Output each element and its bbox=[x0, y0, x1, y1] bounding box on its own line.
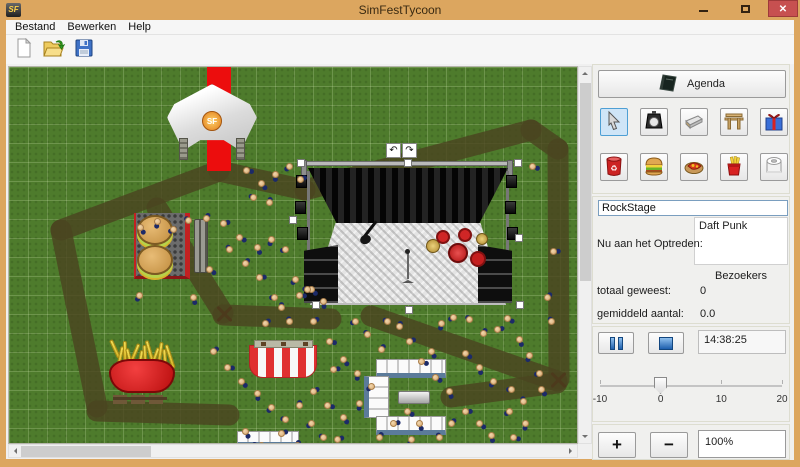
new-file-icon bbox=[14, 38, 34, 61]
visitor-head bbox=[185, 217, 192, 224]
visitor bbox=[254, 390, 262, 398]
visitor bbox=[476, 420, 484, 428]
tool-button-burger[interactable] bbox=[640, 153, 668, 181]
cursor-icon bbox=[603, 110, 625, 135]
visitor-head bbox=[480, 330, 487, 337]
visitor-head bbox=[418, 358, 425, 365]
stop-button[interactable] bbox=[648, 332, 684, 354]
visitor bbox=[320, 298, 328, 306]
visitor-head bbox=[428, 348, 435, 355]
open-folder-icon bbox=[43, 38, 65, 61]
tool-button-mattress[interactable] bbox=[680, 108, 708, 136]
rig-bar bbox=[307, 171, 310, 259]
title-bar: SF SimFestTycoon bbox=[0, 0, 800, 20]
visitor-head bbox=[220, 220, 227, 227]
visitor-head bbox=[326, 338, 333, 345]
visitor-head bbox=[268, 404, 275, 411]
visitor-head bbox=[494, 326, 501, 333]
visitor-head bbox=[466, 316, 473, 323]
visitor-head bbox=[376, 434, 383, 441]
visitor-head bbox=[548, 318, 555, 325]
visitor-head bbox=[286, 318, 293, 325]
visitor bbox=[268, 404, 276, 412]
selection-handle[interactable] bbox=[404, 159, 412, 167]
burger-icon bbox=[643, 155, 665, 180]
visitor bbox=[396, 323, 404, 331]
visitor-head bbox=[340, 356, 347, 363]
visitor-head bbox=[136, 292, 143, 299]
light-rig-l bbox=[294, 171, 312, 259]
window-title: SimFestTycoon bbox=[0, 0, 800, 20]
horizontal-scroll-thumb[interactable] bbox=[21, 446, 151, 457]
visitor-head bbox=[238, 378, 245, 385]
visitor-head bbox=[242, 428, 249, 435]
visitor-head bbox=[476, 420, 483, 427]
visitor bbox=[136, 292, 144, 300]
guitar-body bbox=[359, 233, 372, 245]
visitor-head bbox=[210, 348, 217, 355]
visitor bbox=[292, 276, 300, 284]
visitor bbox=[404, 408, 412, 416]
visitor-head bbox=[154, 218, 161, 225]
drum-part bbox=[448, 243, 468, 263]
tool-button-fries[interactable] bbox=[720, 153, 748, 181]
visitor-head bbox=[268, 236, 275, 243]
vertical-scroll-thumb[interactable] bbox=[580, 83, 591, 281]
close-button[interactable] bbox=[768, 0, 798, 17]
maximize-button[interactable] bbox=[734, 0, 756, 17]
guitar bbox=[358, 219, 382, 247]
visitor bbox=[320, 434, 328, 442]
drum-kit bbox=[428, 227, 490, 281]
visitor-head bbox=[432, 374, 439, 381]
total-visitors-value: 0 bbox=[700, 285, 706, 297]
visitor bbox=[258, 180, 266, 188]
menu-item-bestand[interactable]: Bestand bbox=[9, 20, 61, 35]
light-rig-r bbox=[504, 171, 522, 259]
visitor-head bbox=[550, 248, 557, 255]
visitor bbox=[268, 236, 276, 244]
visitor-head bbox=[462, 408, 469, 415]
selection-handle[interactable] bbox=[405, 306, 413, 314]
visitor bbox=[324, 402, 332, 410]
visitor bbox=[376, 434, 384, 442]
visitor bbox=[368, 383, 376, 391]
agenda-button-label: Agenda bbox=[687, 78, 725, 90]
visitor bbox=[310, 318, 318, 326]
visitor-head bbox=[190, 294, 197, 301]
visitor bbox=[526, 352, 534, 360]
save-icon bbox=[74, 38, 94, 61]
spotlight bbox=[506, 175, 517, 188]
stand-counter bbox=[254, 340, 313, 348]
visitor bbox=[238, 378, 246, 386]
visitor bbox=[450, 314, 458, 322]
visitor bbox=[226, 246, 234, 254]
visitor-head bbox=[296, 402, 303, 409]
visitor bbox=[480, 330, 488, 338]
visitor-head bbox=[286, 163, 293, 170]
visitor bbox=[242, 428, 250, 436]
visitor bbox=[297, 176, 305, 184]
stage-curtain bbox=[308, 168, 508, 226]
tent-leg bbox=[179, 138, 188, 160]
visitor-head bbox=[516, 336, 523, 343]
visitor bbox=[296, 402, 304, 410]
visitor-head bbox=[368, 383, 375, 390]
visitor-head bbox=[384, 318, 391, 325]
visitor bbox=[304, 286, 312, 294]
toilet-roll-icon bbox=[763, 155, 785, 180]
visitor bbox=[236, 234, 244, 242]
visitor-head bbox=[390, 420, 397, 427]
visitors-header: Bezoekers bbox=[694, 270, 788, 282]
visitor bbox=[476, 364, 484, 372]
visitor bbox=[278, 304, 286, 312]
visitor-head bbox=[226, 246, 233, 253]
visitor bbox=[256, 274, 264, 282]
visitor-head bbox=[408, 436, 415, 443]
visitor bbox=[406, 338, 414, 346]
visitor-head bbox=[538, 386, 545, 393]
selection-handle[interactable] bbox=[515, 234, 523, 242]
visitor bbox=[508, 386, 516, 394]
rotate-right-button[interactable]: ↷ bbox=[402, 143, 417, 158]
save-button[interactable] bbox=[71, 37, 96, 62]
vertical-scrollbar[interactable] bbox=[578, 66, 592, 444]
visitor-head bbox=[320, 434, 327, 441]
pause-icon bbox=[610, 337, 623, 350]
visitor bbox=[462, 408, 470, 416]
visitor bbox=[296, 292, 304, 300]
visitor bbox=[462, 350, 470, 358]
visitor-head bbox=[462, 350, 469, 357]
bench-h[interactable] bbox=[113, 395, 167, 404]
scroll-down-arrow-icon[interactable] bbox=[579, 430, 591, 442]
visitor bbox=[536, 370, 544, 378]
visitor bbox=[356, 400, 364, 408]
visitor-head bbox=[448, 420, 455, 427]
striped-stand[interactable] bbox=[249, 345, 317, 378]
visitor-head bbox=[510, 434, 517, 441]
visitor-head bbox=[256, 274, 263, 281]
stage-name-input[interactable] bbox=[598, 200, 788, 216]
visitor bbox=[330, 366, 338, 374]
zoom-in-button[interactable]: + bbox=[598, 432, 636, 458]
trashcan-icon: ♻ bbox=[603, 155, 625, 180]
visitor bbox=[466, 316, 474, 324]
mattress-icon bbox=[683, 110, 705, 135]
visitor bbox=[170, 226, 178, 234]
visitor bbox=[488, 432, 496, 440]
now-playing-listbox[interactable]: Daft Punk bbox=[694, 217, 788, 265]
svg-text:♻: ♻ bbox=[610, 164, 617, 173]
visitor-head bbox=[356, 400, 363, 407]
slider-tick bbox=[600, 380, 601, 384]
visitor bbox=[310, 388, 318, 396]
visitor bbox=[494, 326, 502, 334]
visitor bbox=[224, 364, 232, 372]
visitor bbox=[550, 248, 558, 256]
visitor bbox=[308, 420, 316, 428]
total-visitors-label: totaal geweest: bbox=[597, 285, 671, 297]
visitor-head bbox=[364, 331, 371, 338]
visitor-head bbox=[278, 304, 285, 311]
slider-tick-label: 0 bbox=[658, 394, 664, 405]
spotlight bbox=[295, 201, 306, 214]
tool-button-pizza[interactable] bbox=[680, 153, 708, 181]
visitor-head bbox=[308, 420, 315, 427]
visitor-head bbox=[310, 388, 317, 395]
clock-field: 14:38:25 bbox=[698, 330, 786, 354]
visitor bbox=[364, 331, 372, 339]
tool-button-spotlight[interactable] bbox=[640, 108, 668, 136]
visitor bbox=[334, 436, 342, 444]
visitor-head bbox=[396, 323, 403, 330]
selection-handle[interactable] bbox=[514, 159, 522, 167]
scroll-right-arrow-icon[interactable] bbox=[564, 445, 576, 457]
visitor-head bbox=[282, 416, 289, 423]
visitor bbox=[448, 420, 456, 428]
fries-stand[interactable] bbox=[109, 339, 175, 393]
counter-item bbox=[261, 342, 266, 346]
visitor bbox=[271, 294, 279, 302]
tent[interactable]: SF bbox=[167, 84, 257, 160]
visitor bbox=[250, 194, 258, 202]
visitor bbox=[408, 436, 416, 444]
visitor bbox=[154, 218, 162, 226]
visitor-head bbox=[488, 432, 495, 439]
menu-bar: BestandBewerkenHelp bbox=[6, 20, 794, 35]
visitor-head bbox=[250, 194, 257, 201]
counter-item bbox=[281, 342, 286, 346]
visitor bbox=[416, 420, 424, 428]
slider-tick bbox=[782, 380, 783, 384]
dead-tree bbox=[549, 371, 567, 389]
visitor-head bbox=[352, 318, 359, 325]
fries-icon bbox=[723, 155, 745, 180]
tool-button-select[interactable] bbox=[600, 108, 628, 136]
visitor-head bbox=[324, 402, 331, 409]
visitor-head bbox=[330, 366, 337, 373]
visitor bbox=[544, 294, 552, 302]
visitor bbox=[220, 220, 228, 228]
giant-burger bbox=[137, 245, 173, 275]
visitor bbox=[254, 244, 262, 252]
visitor bbox=[272, 171, 280, 179]
visitor bbox=[378, 346, 386, 354]
visitor bbox=[206, 266, 214, 274]
average-visitors-value: 0.0 bbox=[700, 308, 715, 320]
spotlight bbox=[297, 227, 308, 240]
slider-tick-label: 20 bbox=[776, 394, 787, 405]
spotlight bbox=[505, 201, 516, 214]
visitor bbox=[210, 348, 218, 356]
visitor bbox=[190, 294, 198, 302]
visitor-head bbox=[334, 436, 341, 443]
visitor-head bbox=[436, 434, 443, 441]
pause-button[interactable] bbox=[598, 332, 634, 354]
tent-leg bbox=[236, 138, 245, 160]
agenda-button[interactable]: Agenda bbox=[598, 70, 786, 98]
visitor bbox=[242, 260, 250, 268]
visitor bbox=[522, 420, 530, 428]
visitor-head bbox=[170, 226, 177, 233]
visitor bbox=[538, 386, 546, 394]
visitor-head bbox=[506, 408, 513, 415]
now-playing-value: Daft Punk bbox=[699, 220, 747, 232]
visitor bbox=[243, 167, 251, 175]
visitor-head bbox=[236, 234, 243, 241]
stage[interactable] bbox=[294, 159, 522, 307]
burger-stand[interactable] bbox=[134, 213, 190, 279]
map-canvas[interactable]: SF↶↷ bbox=[9, 67, 578, 444]
notebook-icon bbox=[659, 74, 679, 95]
ramp[interactable] bbox=[398, 391, 430, 404]
visitor-head bbox=[522, 420, 529, 427]
open-folder-button[interactable] bbox=[41, 37, 66, 62]
scroll-up-arrow-icon[interactable] bbox=[579, 68, 591, 80]
dead-tree bbox=[215, 305, 233, 323]
visitor-head bbox=[490, 378, 497, 385]
visitor bbox=[282, 246, 290, 254]
menu-item-help[interactable]: Help bbox=[122, 20, 157, 35]
visitor-head bbox=[310, 318, 317, 325]
visitor bbox=[548, 318, 556, 326]
drum-part bbox=[436, 230, 450, 244]
visitor-head bbox=[137, 224, 144, 231]
pizza-icon bbox=[683, 155, 705, 180]
gift-icon bbox=[763, 110, 785, 135]
visitor bbox=[185, 217, 193, 225]
side-panel: Agenda ♻ Daft Punk Nu aan het Optreden: … bbox=[592, 64, 794, 460]
visitor bbox=[262, 320, 270, 328]
tent-logo: SF bbox=[202, 111, 222, 131]
truss-icon bbox=[723, 110, 745, 135]
visitor bbox=[506, 408, 514, 416]
visitor bbox=[340, 414, 348, 422]
visitor-head bbox=[340, 414, 347, 421]
visitor bbox=[520, 398, 528, 406]
visitor-head bbox=[203, 215, 210, 222]
visitor-head bbox=[254, 390, 261, 397]
zoom-out-button[interactable]: − bbox=[650, 432, 688, 458]
toilet-row[interactable] bbox=[376, 416, 446, 435]
visitor bbox=[384, 318, 392, 326]
visitor-head bbox=[446, 388, 453, 395]
visitor bbox=[446, 388, 454, 396]
selection-handle[interactable] bbox=[516, 301, 524, 309]
visitor-head bbox=[526, 352, 533, 359]
visitor bbox=[428, 348, 436, 356]
visitor-head bbox=[296, 292, 303, 299]
visitor-head bbox=[320, 298, 327, 305]
visitor bbox=[432, 374, 440, 382]
visitor-head bbox=[520, 398, 527, 405]
visitor-head bbox=[404, 408, 411, 415]
visitor-head bbox=[271, 294, 278, 301]
visitor-head bbox=[304, 286, 311, 293]
fries-bowl bbox=[109, 359, 175, 393]
app-window: SF SimFestTycoon BestandBewerkenHelp SF↶… bbox=[0, 0, 800, 467]
visitor-head bbox=[508, 386, 515, 393]
visitor bbox=[137, 224, 145, 232]
visitor bbox=[282, 416, 290, 424]
visitor bbox=[438, 320, 446, 328]
visitor bbox=[390, 420, 398, 428]
visitor-head bbox=[378, 346, 385, 353]
speaker-stack-left bbox=[304, 245, 338, 303]
visitor bbox=[278, 430, 286, 438]
selection-handle[interactable] bbox=[297, 159, 305, 167]
tool-button-gift[interactable] bbox=[760, 108, 788, 136]
visitor-head bbox=[282, 246, 289, 253]
visitor bbox=[286, 318, 294, 326]
visitor-head bbox=[450, 314, 457, 321]
selection-handle[interactable] bbox=[289, 216, 297, 224]
visitor bbox=[326, 338, 334, 346]
visitor-head bbox=[438, 320, 445, 327]
menu-item-bewerken[interactable]: Bewerken bbox=[61, 20, 122, 35]
average-visitors-label: gemiddeld aantal: bbox=[597, 308, 684, 320]
visitor-head bbox=[504, 315, 511, 322]
visitor bbox=[354, 370, 362, 378]
stop-icon bbox=[659, 337, 673, 350]
selection-handle[interactable] bbox=[312, 301, 320, 309]
visitor bbox=[340, 356, 348, 364]
visitor bbox=[490, 378, 498, 386]
visitor bbox=[266, 199, 274, 207]
visitor-head bbox=[272, 171, 279, 178]
tool-button-toilet-roll[interactable] bbox=[760, 153, 788, 181]
new-file-button[interactable] bbox=[11, 37, 36, 62]
spotlight-icon bbox=[643, 110, 665, 135]
visitor-head bbox=[354, 370, 361, 377]
visitor-head bbox=[416, 420, 423, 427]
visitor bbox=[418, 358, 426, 366]
minimize-button[interactable] bbox=[692, 0, 714, 17]
visitor-head bbox=[262, 320, 269, 327]
visitor bbox=[529, 163, 537, 171]
visitor-head bbox=[292, 276, 299, 283]
visitor-head bbox=[278, 430, 285, 437]
visitor bbox=[203, 215, 211, 223]
tool-button-truss[interactable] bbox=[720, 108, 748, 136]
visitor-head bbox=[476, 364, 483, 371]
visitor-head bbox=[536, 370, 543, 377]
visitor-head bbox=[544, 294, 551, 301]
visitor-head bbox=[529, 163, 536, 170]
slider-tick-label: -10 bbox=[593, 394, 607, 405]
counter-item bbox=[303, 342, 308, 346]
rotate-left-button[interactable]: ↶ bbox=[386, 143, 401, 158]
visitor bbox=[286, 163, 294, 171]
slider-tick bbox=[721, 380, 722, 384]
visitor bbox=[510, 434, 518, 442]
speed-slider-track[interactable] bbox=[600, 385, 782, 387]
visitor-head bbox=[266, 199, 273, 206]
now-playing-label: Nu aan het Optreden: bbox=[597, 238, 703, 250]
bench-v[interactable] bbox=[194, 219, 208, 273]
drum-part bbox=[458, 228, 472, 242]
tool-button-trashcan[interactable]: ♻ bbox=[600, 153, 628, 181]
visitor bbox=[436, 434, 444, 442]
map-viewport[interactable]: SF↶↷ bbox=[8, 66, 578, 444]
visitor-head bbox=[243, 167, 250, 174]
visitor bbox=[352, 318, 360, 326]
horizontal-scrollbar[interactable] bbox=[8, 444, 578, 458]
slider-tick-label: 10 bbox=[716, 394, 727, 405]
